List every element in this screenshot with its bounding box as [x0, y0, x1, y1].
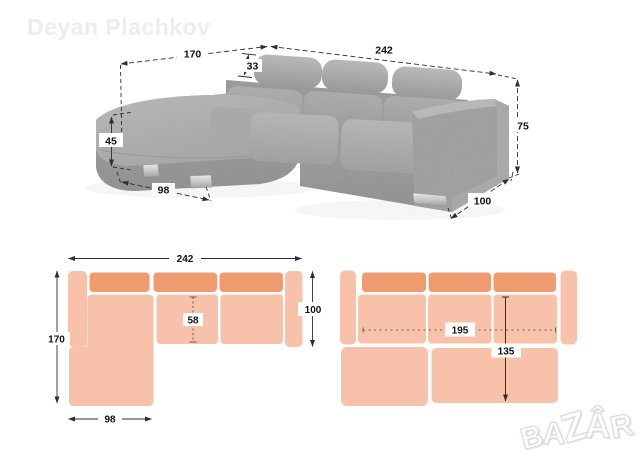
- bed-seat-left: [358, 295, 426, 344]
- ext-line: [238, 76, 252, 78]
- bed-back-cushion-3: [494, 273, 557, 293]
- dim-label-total-width: 242: [368, 43, 400, 57]
- bed-chaise: [341, 347, 428, 406]
- sofa-headrest-2: [321, 59, 389, 95]
- dim-label-arm-depth: 100: [468, 193, 497, 208]
- bed-left-armrest: [340, 271, 356, 345]
- sofa-foot-1: [143, 164, 159, 177]
- sofa-scene: 170 242 33 75 45 98 100: [0, 0, 640, 453]
- svg-text:170: 170: [184, 49, 202, 61]
- svg-text:242: 242: [375, 45, 393, 57]
- plan-back-cushion-1: [90, 273, 150, 293]
- svg-text:135: 135: [498, 347, 515, 358]
- plan-back-cushion-2: [154, 273, 218, 293]
- sofa-headrest-1: [253, 54, 323, 90]
- dim-label-seat-height: 45: [99, 133, 123, 148]
- bed-back-cushion-1: [362, 273, 426, 293]
- bed-back-cushion-2: [429, 273, 492, 293]
- svg-text:100: 100: [305, 305, 322, 316]
- svg-text:45: 45: [105, 136, 117, 148]
- plan-sofa-top-view: 242 170 58 100 98: [43, 252, 328, 426]
- plan-bed-top-view: 195 135: [340, 271, 577, 407]
- svg-text:100: 100: [474, 196, 492, 208]
- svg-text:98: 98: [104, 415, 116, 426]
- plan-back-cushion-3: [220, 273, 284, 293]
- dim-label-plan-depth: 170: [43, 332, 70, 346]
- svg-text:170: 170: [48, 335, 65, 346]
- dim-label-chaise-width: 98: [152, 183, 175, 197]
- dim-label-seat-depth: 58: [183, 313, 203, 327]
- sofa-foot-2: [190, 175, 212, 188]
- svg-text:195: 195: [452, 326, 469, 337]
- bed-right-armrest: [561, 271, 578, 345]
- dim-label-bed-width: 195: [445, 323, 475, 337]
- bazar-logo-letter: Â: [584, 408, 609, 443]
- svg-text:58: 58: [187, 316, 199, 327]
- bed-seat-right: [494, 295, 558, 344]
- dim-label-chaise-depth: 170: [177, 47, 208, 61]
- dim-label-headrest-height: 33: [243, 59, 262, 73]
- sofa-seat-cushion-1: [249, 112, 339, 166]
- plan-left-armrest: [68, 271, 87, 347]
- dim-label-bed-depth: 135: [491, 344, 521, 358]
- listing-image: Deyan Plachkov: [0, 0, 640, 453]
- svg-text:98: 98: [158, 185, 170, 197]
- sofa-photo: [85, 54, 509, 220]
- dim-label-plan-width: 242: [169, 252, 201, 266]
- svg-text:33: 33: [247, 61, 259, 73]
- dim-label-plan-body-depth: 100: [298, 302, 328, 316]
- ext-line: [509, 174, 519, 178]
- sofa-headrest-3: [391, 66, 463, 102]
- dim-label-plan-chaise: 98: [98, 412, 122, 426]
- svg-text:242: 242: [177, 254, 194, 265]
- ext-line: [242, 54, 256, 56]
- ext-line: [498, 75, 518, 79]
- plan-seat-right: [221, 295, 284, 345]
- dim-label-total-height: 75: [512, 118, 534, 133]
- svg-text:75: 75: [517, 121, 529, 133]
